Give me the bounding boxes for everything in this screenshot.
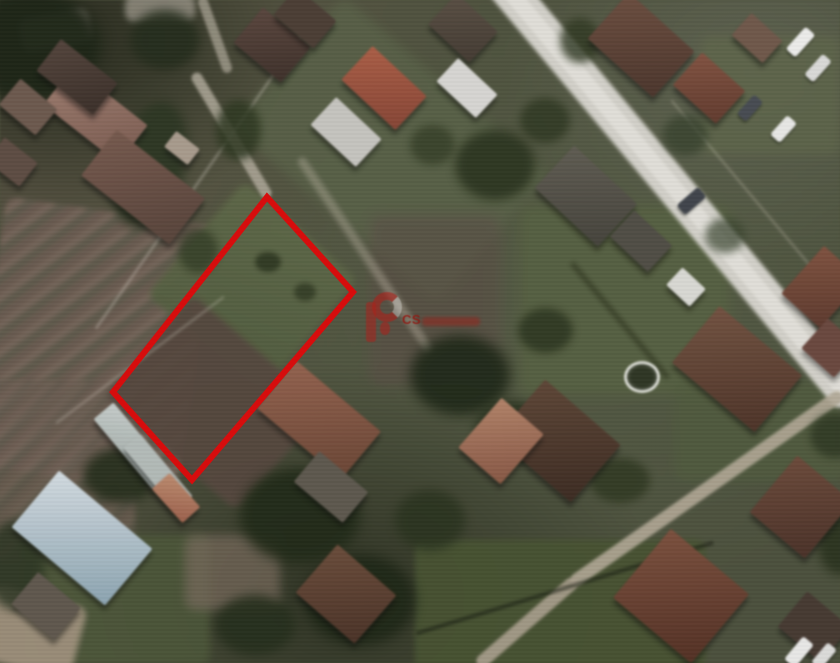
logo-dot <box>380 322 390 335</box>
watermark: CS <box>366 288 506 354</box>
tree <box>216 100 261 160</box>
trampoline-ring <box>624 361 660 393</box>
tree-in-plot <box>294 283 316 301</box>
tree-in-plot <box>255 252 281 272</box>
tree <box>520 98 570 143</box>
tree <box>705 218 745 253</box>
tree <box>518 308 573 353</box>
tree <box>395 490 465 550</box>
watermark-word-blur <box>422 317 480 326</box>
logo-arc <box>372 292 402 322</box>
watermark-logo-icon <box>366 292 400 346</box>
tree <box>410 125 455 165</box>
tree <box>215 595 295 655</box>
aerial-photo: CS <box>0 0 840 663</box>
tree-cluster <box>455 130 535 200</box>
tree <box>663 115 708 155</box>
tree <box>178 228 218 273</box>
tree-cluster <box>130 10 200 70</box>
watermark-text: CS <box>402 312 421 327</box>
